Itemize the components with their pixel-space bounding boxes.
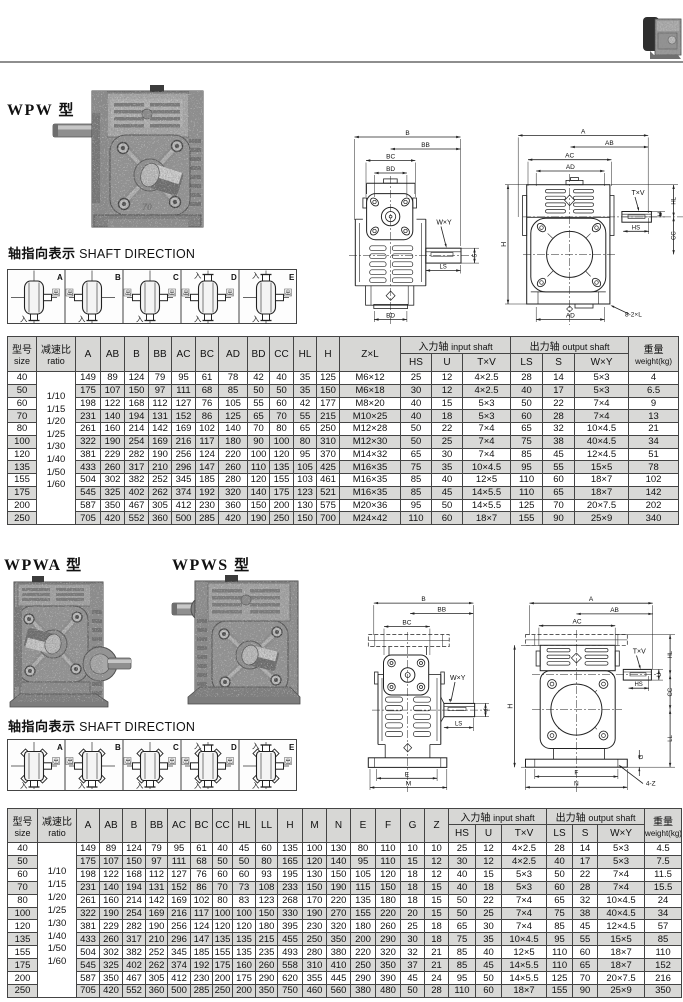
svg-text:入: 入 [136,315,144,324]
svg-text:B: B [115,743,121,752]
svg-text:F: F [574,770,578,777]
svg-text:E: E [289,273,295,282]
svg-text:S: S [473,254,479,258]
svg-text:入: 入 [252,781,260,790]
svg-text:入: 入 [136,781,144,790]
svg-text:AC: AC [573,619,582,626]
svg-text:W×Y: W×Y [450,675,466,682]
svg-text:BB: BB [437,607,446,614]
svg-text:BC: BC [402,620,411,627]
svg-text:入: 入 [252,271,260,280]
svg-text:AB: AB [605,140,614,147]
svg-text:入: 入 [20,315,28,324]
svg-text:H: H [508,704,515,709]
svg-text:A: A [57,743,63,752]
svg-text:U: U [658,212,664,216]
svg-text:C: C [173,743,179,752]
svg-text:入: 入 [20,781,28,790]
svg-text:T×V: T×V [631,190,644,197]
svg-text:BD: BD [386,166,395,173]
svg-text:U: U [657,673,663,677]
svg-text:LS: LS [439,265,446,271]
svg-text:AC: AC [565,153,574,160]
svg-text:入: 入 [252,315,260,324]
svg-text:M: M [406,781,411,788]
svg-text:A: A [581,128,586,135]
svg-text:C: C [173,273,179,282]
svg-text:G: G [639,754,645,759]
svg-text:B: B [421,596,425,603]
svg-text:E: E [289,743,295,752]
svg-text:D: D [231,273,237,282]
svg-text:入: 入 [78,315,86,324]
svg-text:入: 入 [78,781,86,790]
svg-text:BC: BC [386,154,395,161]
svg-text:AB: AB [610,607,619,614]
svg-text:d: d [484,708,490,711]
svg-text:T×V: T×V [633,649,646,656]
svg-text:E: E [405,771,410,778]
svg-text:N: N [574,780,579,787]
svg-text:A: A [57,273,63,282]
svg-text:HS: HS [634,682,642,688]
svg-text:H: H [501,242,508,247]
svg-text:B: B [405,130,409,137]
svg-text:A: A [589,596,594,603]
svg-text:8-2×L: 8-2×L [625,311,642,318]
svg-text:HS: HS [632,225,640,231]
svg-text:入: 入 [252,742,260,751]
svg-text:LS: LS [455,722,462,728]
svg-text:入: 入 [194,742,202,751]
svg-text:B: B [115,273,121,282]
svg-text:D: D [231,743,237,752]
svg-text:AD: AD [566,313,575,320]
svg-text:W×Y: W×Y [436,220,452,227]
svg-text:4-Z: 4-Z [646,780,656,787]
svg-text:CC: CC [672,231,678,240]
svg-text:CC: CC [668,687,674,696]
svg-text:HL: HL [672,196,678,204]
svg-text:入: 入 [194,271,202,280]
svg-text:HL: HL [668,650,674,658]
svg-text:入: 入 [194,315,202,324]
svg-text:LL: LL [668,734,674,741]
svg-text:BB: BB [421,142,430,149]
svg-text:入: 入 [194,781,202,790]
svg-text:AD: AD [566,164,575,171]
svg-text:BD: BD [386,313,395,320]
